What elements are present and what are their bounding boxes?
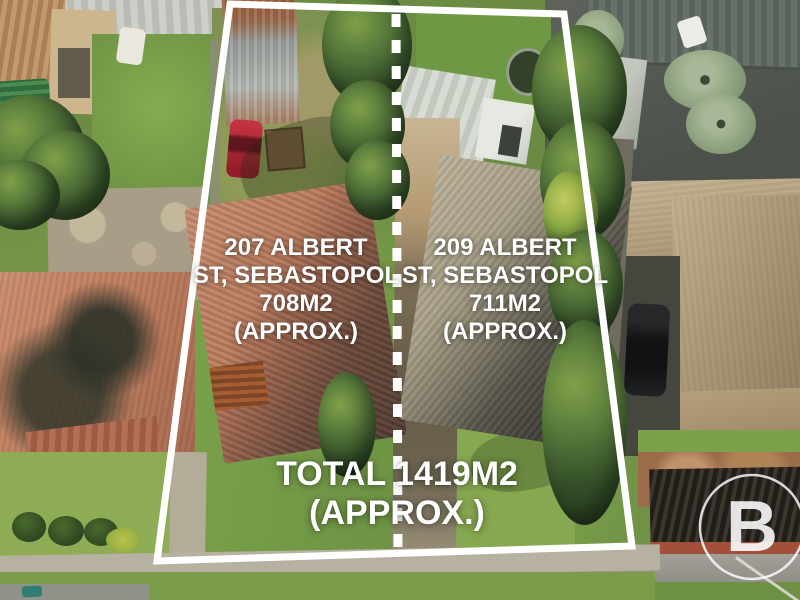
label-line: 708M2 [176, 290, 416, 318]
label-line: TOTAL 1419M2 [247, 455, 547, 494]
lot-left-label: 207 ALBERT ST, SEBASTOPOL 708M2 (APPROX.… [176, 234, 416, 346]
label-line: 207 ALBERT [176, 234, 416, 262]
label-line: 711M2 [385, 290, 625, 318]
label-line: (APPROX.) [385, 318, 625, 346]
label-line: (APPROX.) [247, 494, 547, 533]
label-line: 209 ALBERT [385, 234, 625, 262]
lot-right-label: 209 ALBERT ST, SEBASTOPOL 711M2 (APPROX.… [385, 234, 625, 346]
aerial-photo: 207 ALBERT ST, SEBASTOPOL 708M2 (APPROX.… [0, 0, 800, 600]
label-line: ST, SEBASTOPOL [385, 262, 625, 290]
label-line: ST, SEBASTOPOL [176, 262, 416, 290]
total-area-label: TOTAL 1419M2 (APPROX.) [247, 455, 547, 533]
b-logo-icon: B [712, 486, 792, 568]
label-line: (APPROX.) [176, 318, 416, 346]
